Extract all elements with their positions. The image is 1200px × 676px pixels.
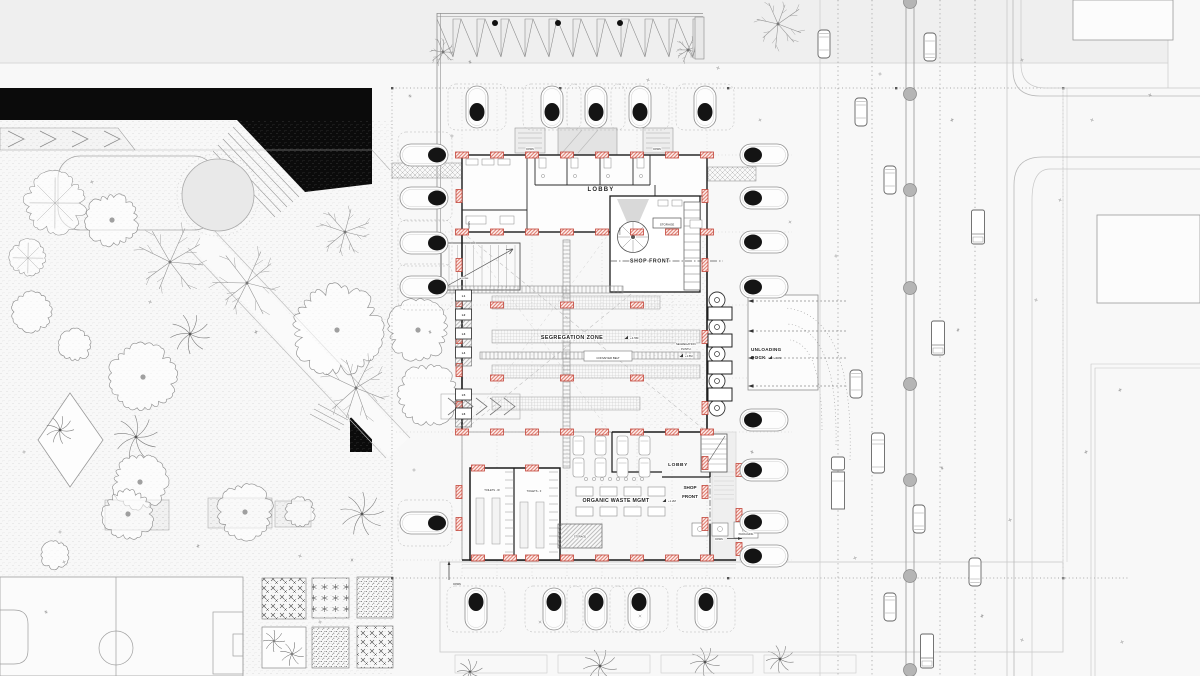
site-tree-east [740, 409, 788, 431]
lift-hatch [456, 358, 472, 366]
canopy-outline [397, 365, 460, 426]
column-marker [491, 229, 504, 235]
site-tree-west [400, 232, 448, 254]
truck-plan-icon [932, 321, 945, 355]
column-marker [561, 229, 574, 235]
column-marker [631, 429, 644, 435]
label-shop-front-lower-1: SHOP [683, 485, 696, 490]
site-tree-north [466, 86, 488, 128]
site-plan-canvas: L1L2L3L4L5L6 LOBBYSTORAGESHOP FRONTSEGRE… [0, 0, 1200, 676]
trunk-dot [189, 333, 192, 336]
dock-bay [708, 334, 732, 347]
median-tree [904, 570, 917, 583]
label-segregation-zone: SEGREGATION ZONE [541, 335, 603, 341]
column-marker [666, 229, 679, 235]
label-down-ramp: DOWN [468, 221, 471, 229]
column-marker [596, 429, 609, 435]
trunk-dot [779, 658, 782, 661]
site-tree-north [585, 86, 607, 128]
dock-bay [708, 361, 732, 374]
trunk-dot [125, 511, 130, 516]
toilet-stall [520, 502, 528, 548]
park-tree-blob [397, 365, 460, 426]
column-marker [702, 486, 708, 499]
lounger [573, 436, 584, 455]
tree-canopy [633, 103, 648, 121]
canopy-column-dot [555, 20, 561, 26]
truck-plan-icon [972, 210, 985, 244]
label-unloading-dock-2: DOCK [751, 355, 766, 360]
tree-canopy [744, 280, 762, 295]
label-down-wall: DOWN [462, 278, 469, 280]
trailer-box [832, 472, 845, 509]
column-marker [701, 229, 714, 235]
tree-canopy [699, 593, 714, 611]
column-marker [702, 457, 708, 470]
tree-canopy [744, 148, 762, 163]
column-marker [526, 465, 539, 471]
car-plan-icon [913, 505, 925, 533]
tree-canopy [428, 516, 446, 531]
lounger [617, 436, 628, 455]
label-conveyer-belt: CONVEYER BELT [596, 356, 620, 360]
fixture [466, 159, 478, 165]
site-tree-north [541, 86, 563, 128]
dock-turntable [709, 400, 725, 416]
truck-body [921, 634, 934, 668]
column-marker [504, 555, 517, 561]
trunk-dot [334, 327, 339, 332]
column-marker [456, 190, 462, 203]
label-down-east: DOWN [715, 538, 723, 541]
truck-body [932, 321, 945, 355]
column-marker [472, 555, 485, 561]
label-lobby-lower: LOBBY [668, 462, 688, 468]
site-tree-south [465, 588, 487, 630]
label-segregation-zone-level: +1.5M [630, 336, 639, 340]
site-tree-west [400, 512, 448, 534]
segregation-table-3 [492, 365, 700, 378]
lift-cells: L1L2L3L4L5L6 [456, 290, 472, 427]
site-tree-north [629, 86, 651, 128]
garden-bed [357, 577, 393, 618]
trunk-dot [242, 509, 247, 514]
park-tree-blob [388, 299, 448, 362]
lift-label-L1: L1 [462, 294, 466, 298]
site-tree-east [740, 144, 788, 166]
column-marker [631, 375, 644, 381]
column-marker [631, 229, 644, 235]
tree-canopy [744, 515, 762, 530]
entry-walk-east [708, 167, 756, 181]
tree-canopy [744, 191, 762, 206]
label-unloading-dock-level: +0.0M [774, 356, 781, 360]
tree-canopy [470, 103, 485, 121]
spiral-stair-post [631, 235, 635, 239]
trunk-dot [777, 23, 780, 26]
lift-hatch [456, 301, 472, 309]
site-plan-page: L1L2L3L4L5L6 LOBBYSTORAGESHOP FRONTSEGRE… [0, 0, 1200, 676]
trunk-dot [599, 665, 602, 668]
car-body [850, 370, 862, 398]
column-marker [596, 229, 609, 235]
column-marker [596, 152, 609, 158]
label-unloading-dock-1: UNLOADING [751, 347, 782, 352]
median-tree [904, 474, 917, 487]
work-table [624, 507, 641, 516]
lounger [617, 458, 628, 477]
car-body [855, 98, 867, 126]
column-marker [666, 555, 679, 561]
site-tree-west [400, 144, 448, 166]
site-tree-east [740, 276, 788, 298]
car-plan-icon [884, 593, 896, 621]
garden-bed [312, 578, 349, 618]
fixture [498, 159, 510, 165]
dock-turntable [709, 346, 725, 362]
truck-plan-icon [921, 634, 934, 668]
garden-bed [357, 626, 393, 668]
trailer-plan-icon [832, 457, 845, 509]
tree-canopy [589, 103, 604, 121]
column-marker [561, 429, 574, 435]
label-packaging: PACKAGING [739, 533, 754, 536]
canopy-column-dot [492, 20, 498, 26]
trunk-dot [109, 217, 114, 222]
column-marker [702, 518, 708, 531]
tree-canopy [428, 280, 446, 295]
tree-canopy [744, 463, 762, 478]
column-marker [702, 190, 708, 203]
car-plan-icon [818, 30, 830, 58]
work-table [576, 487, 593, 496]
canopy-connector [558, 128, 617, 155]
tree-canopy [545, 103, 560, 121]
tree-canopy [428, 236, 446, 251]
column-marker [666, 152, 679, 158]
wc-fixture [604, 158, 611, 168]
garden-bed [312, 627, 349, 668]
fixture [500, 216, 514, 224]
tree-canopy [589, 593, 604, 611]
column-marker [526, 429, 539, 435]
site-tree-east [740, 187, 788, 209]
car-body [924, 33, 936, 61]
car-body [913, 505, 925, 533]
site-tree-west [400, 187, 448, 209]
column-marker [456, 486, 462, 499]
fixture [672, 200, 682, 206]
label-toilets-f: TOILETS - F [527, 489, 542, 493]
column-marker [456, 259, 462, 272]
column-marker [561, 375, 574, 381]
column-marker [561, 302, 574, 308]
label-segregation-plinth-2: PLINTH [681, 347, 691, 351]
block2-building [1097, 215, 1200, 303]
column-marker [666, 429, 679, 435]
column-marker [456, 152, 469, 158]
trunk-dot [704, 661, 707, 664]
label-segregation-plinth-1: SEGREGATION [676, 342, 696, 346]
tree-canopy [428, 148, 446, 163]
column-marker [561, 555, 574, 561]
dock-turntable [709, 319, 725, 335]
site-tree-east [740, 545, 788, 567]
trunk-dot [355, 387, 358, 390]
label-organic-waste: ORGANIC WASTE MGMT [582, 498, 650, 504]
lounger [595, 436, 606, 455]
dock-apron [748, 295, 818, 390]
car-plan-icon [924, 33, 936, 61]
lift-hatch [456, 419, 472, 427]
car-body [884, 593, 896, 621]
lift-hatch [456, 320, 472, 328]
tree-canopy [744, 549, 762, 564]
trunk-dot [246, 282, 249, 285]
label-down-south: DOWN [453, 583, 461, 586]
site-tree-east [740, 459, 788, 481]
median-tree [904, 664, 917, 676]
column-marker [456, 518, 462, 531]
trunk-dot [442, 51, 445, 54]
work-table [648, 507, 665, 516]
toilet-stall [492, 498, 500, 544]
site-tree-west [400, 276, 448, 298]
fixture [690, 220, 702, 228]
column-marker [456, 229, 469, 235]
lounger [639, 458, 650, 477]
work-table [576, 507, 593, 516]
work-table [600, 487, 617, 496]
lounger [639, 436, 650, 455]
tree-canopy [632, 593, 647, 611]
label-storage-lower: STORAGE [574, 536, 587, 539]
site-tree-east [740, 511, 788, 533]
work-table [624, 487, 641, 496]
label-down-canopy-left: DOWN [526, 148, 534, 151]
label-down-core: DOWN [620, 227, 622, 234]
label-shop-front-lower-2: FRONT [682, 494, 698, 499]
column-marker [456, 429, 469, 435]
column-marker [491, 152, 504, 158]
site-tree-south [695, 588, 717, 630]
site-tree-south [585, 588, 607, 630]
lift-label-L3: L3 [462, 332, 466, 336]
column-marker [526, 555, 539, 561]
car-plan-icon [969, 558, 981, 586]
canopy-column-dot [617, 20, 623, 26]
toilet-stall [476, 498, 484, 544]
wc-fixture [571, 158, 578, 168]
work-table [648, 487, 665, 496]
toilet-stall [536, 502, 544, 548]
trunk-dot [169, 261, 172, 264]
median-tree [904, 184, 917, 197]
car-body [969, 558, 981, 586]
garden-bed [262, 627, 306, 668]
column-marker [491, 302, 504, 308]
trunk-dot [59, 429, 62, 432]
column-marker [701, 555, 714, 561]
dock-turntable [709, 373, 725, 389]
truck-body [972, 210, 985, 244]
garden-bed [262, 578, 306, 619]
lift-label-L6: L6 [462, 412, 466, 416]
football-field [0, 577, 243, 676]
car-plan-icon [884, 166, 896, 194]
lift-hatch [456, 339, 472, 347]
bus-plan-icon [872, 433, 885, 473]
column-marker [631, 302, 644, 308]
median-tree [904, 282, 917, 295]
car-plan-icon [850, 370, 862, 398]
label-lobby-upper: LOBBY [588, 187, 615, 193]
column-marker [702, 402, 708, 415]
site-tree-south [543, 588, 565, 630]
label-organic-waste-level: +1.2M [668, 499, 677, 503]
tree-canopy [744, 235, 762, 250]
column-marker [701, 152, 714, 158]
pond [182, 159, 254, 231]
lift-hatch [456, 400, 472, 408]
dock-turntable [709, 292, 725, 308]
fixture [658, 200, 668, 206]
column-marker [561, 152, 574, 158]
column-marker [702, 259, 708, 272]
site-tree-south [628, 588, 650, 630]
tree-canopy [547, 593, 562, 611]
column-marker [472, 465, 485, 471]
column-marker [631, 555, 644, 561]
car-body [818, 30, 830, 58]
trunk-dot [140, 374, 145, 379]
lift-label-L4: L4 [462, 351, 466, 355]
field-outline [0, 577, 243, 676]
median-tree [904, 378, 917, 391]
lift-label-L5: L5 [462, 393, 466, 397]
trunk-dot [687, 49, 690, 52]
lift-label-L2: L2 [462, 313, 466, 317]
tree-canopy [469, 593, 484, 611]
tree-canopy [428, 191, 446, 206]
column-marker [526, 229, 539, 235]
site-tree-north [694, 86, 716, 128]
canopy-end-wall [695, 17, 704, 59]
trunk-dot [135, 436, 138, 439]
car-plan-icon [855, 98, 867, 126]
trunk-dot [361, 513, 364, 516]
column-marker [631, 152, 644, 158]
wc-fixture [637, 158, 644, 168]
wc-fixture [539, 158, 546, 168]
work-table [600, 507, 617, 516]
fixture [482, 159, 494, 165]
site-tree-east [740, 231, 788, 253]
dock-bay [708, 307, 732, 320]
trunk-dot [415, 327, 420, 332]
column-marker [491, 429, 504, 435]
lounger [595, 458, 606, 477]
tree-canopy [744, 413, 762, 428]
tree-canopy [698, 103, 713, 121]
column-marker [596, 555, 609, 561]
trunk-dot [344, 231, 347, 234]
label-shop-front-upper: SHOP FRONT [630, 259, 670, 265]
car-body [884, 166, 896, 194]
column-marker [701, 429, 714, 435]
dock-bay [708, 388, 732, 401]
trailer-cab [832, 457, 845, 470]
block1-building [1073, 0, 1173, 40]
storage-rack-core [684, 202, 700, 290]
label-down-canopy-right: DOWN [653, 148, 661, 151]
lounger [573, 458, 584, 477]
column-marker [702, 331, 708, 344]
column-marker [491, 375, 504, 381]
label-segregation-plinth-level: +1.5M [685, 354, 693, 358]
trunk-dot [137, 479, 142, 484]
median-tree [904, 88, 917, 101]
label-storage-upper: STORAGE [660, 223, 675, 227]
column-marker [526, 152, 539, 158]
label-toilets-w: TOILETS - W [484, 488, 500, 492]
top-band [0, 0, 1168, 63]
packaging-machine [712, 523, 728, 536]
